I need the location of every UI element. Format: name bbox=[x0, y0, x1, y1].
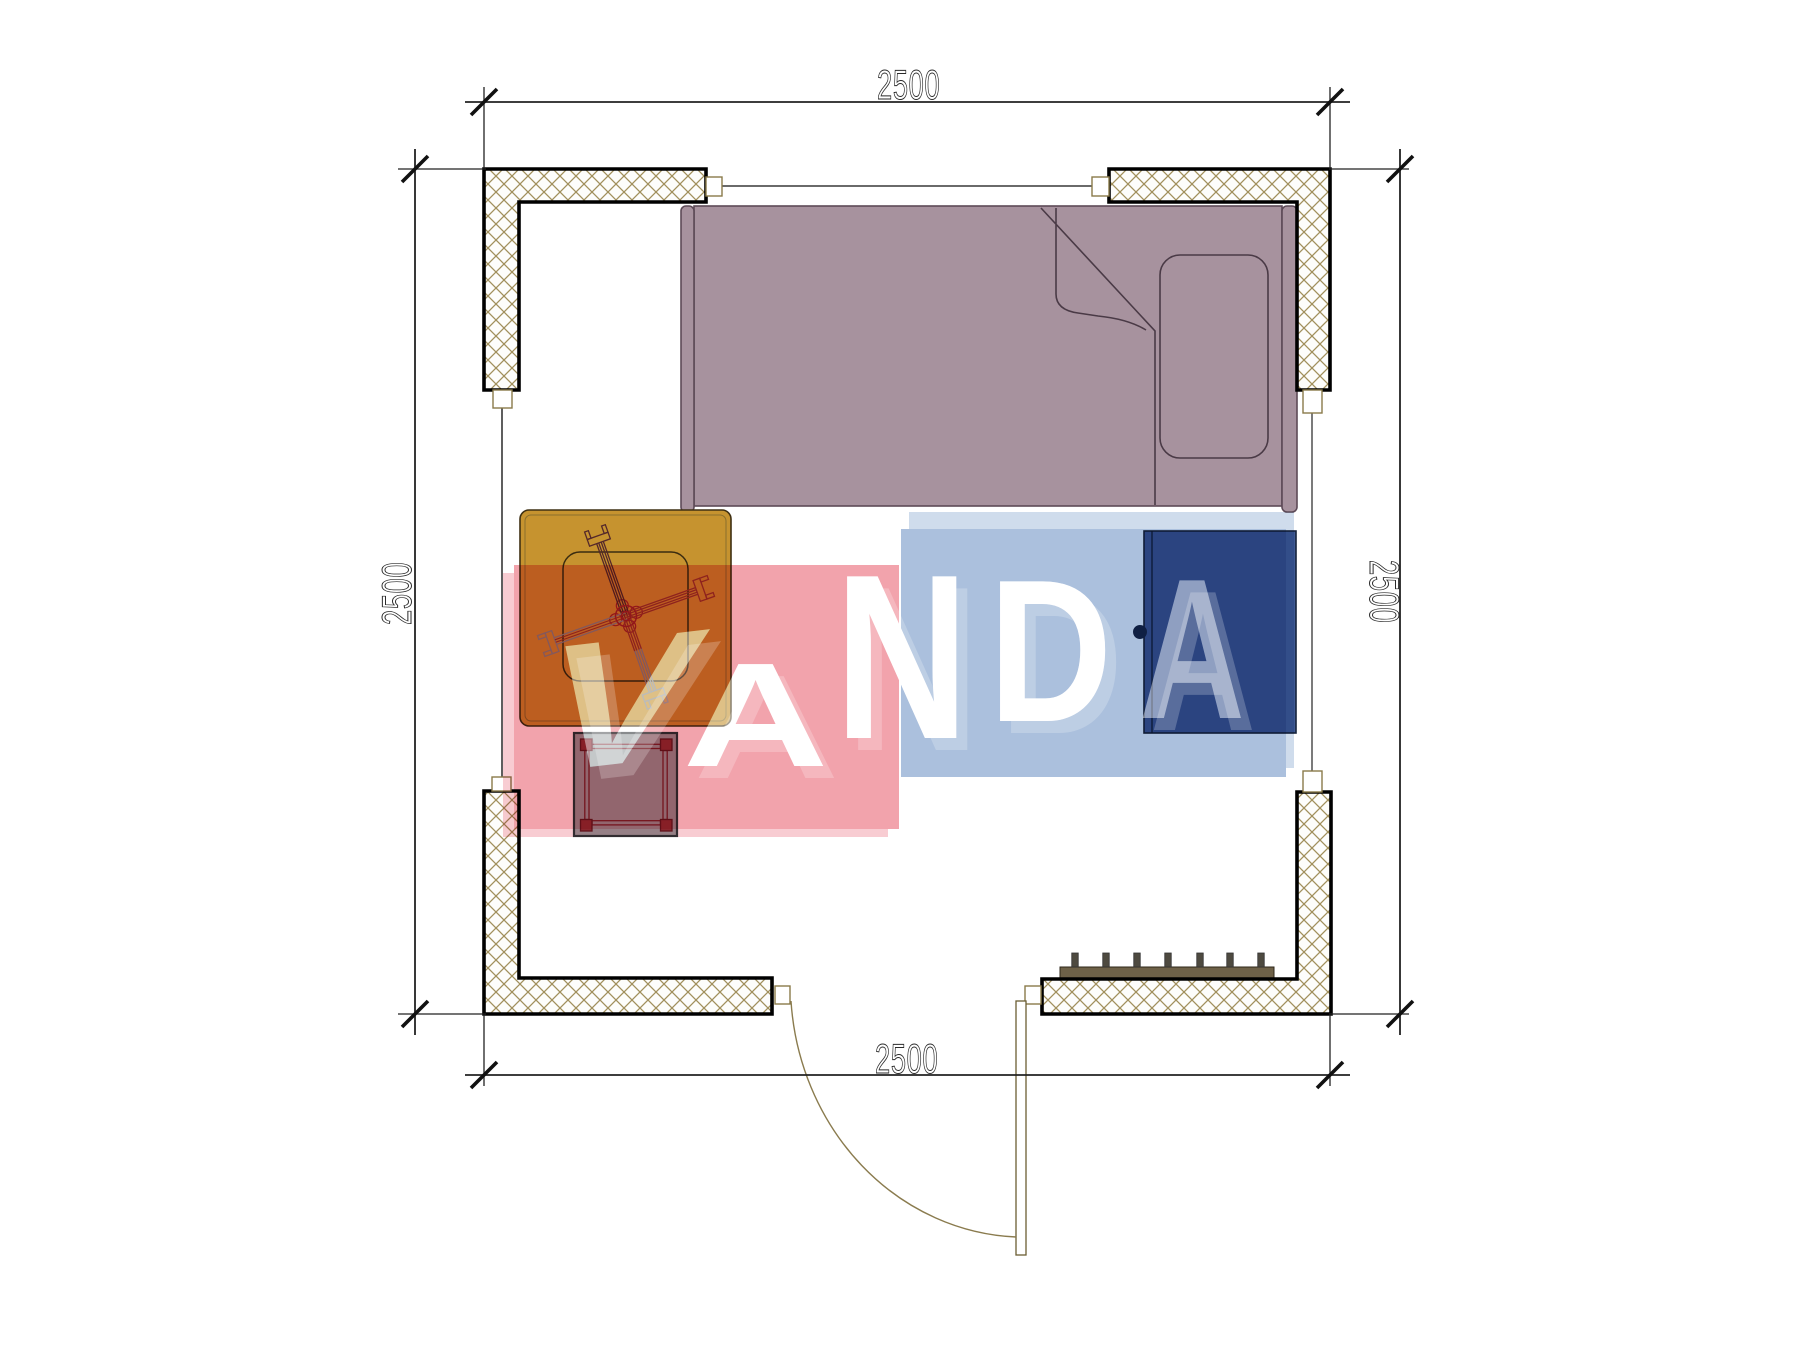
svg-text:2500: 2500 bbox=[1361, 560, 1408, 623]
svg-text:2500: 2500 bbox=[877, 61, 940, 108]
svg-text:2500: 2500 bbox=[875, 1035, 938, 1082]
svg-text:2500: 2500 bbox=[373, 562, 420, 625]
